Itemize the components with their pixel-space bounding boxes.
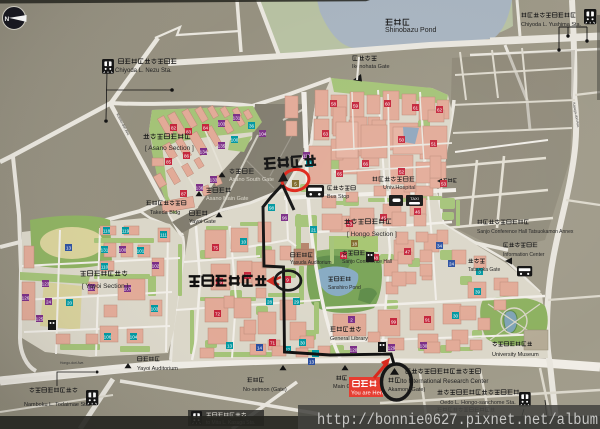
svg-text:http://bonnie0627.pixnet.net/a: http://bonnie0627.pixnet.net/album [317, 411, 598, 429]
